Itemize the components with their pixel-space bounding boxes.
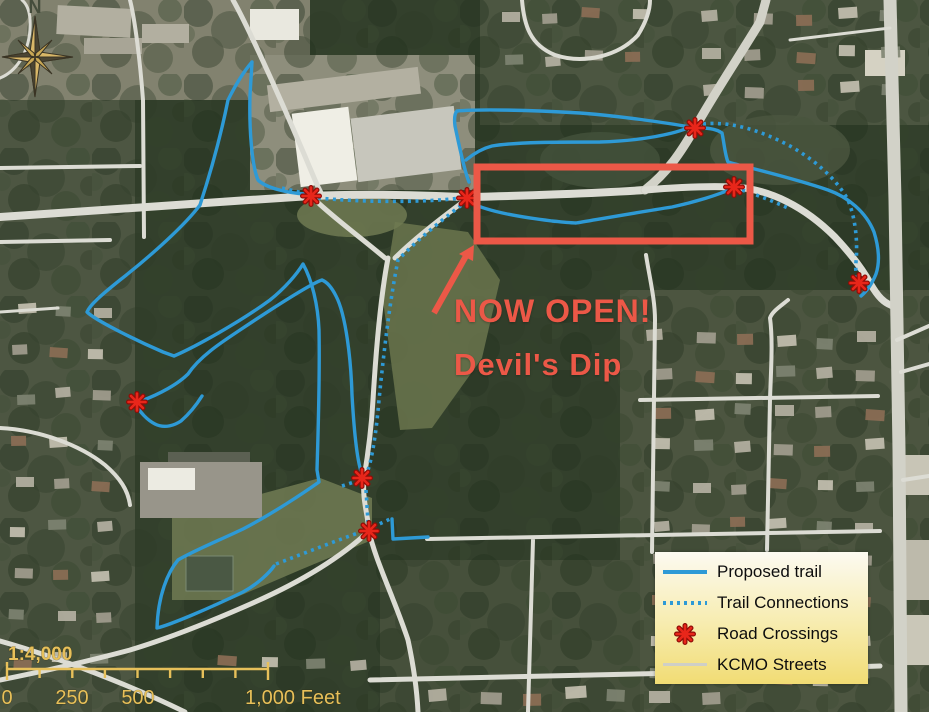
legend-label: KCMO Streets: [717, 655, 827, 675]
scale-tick-500: 500: [121, 687, 154, 709]
legend-row-trail-connections: Trail Connections: [655, 588, 868, 618]
scale-end-label: 1,000 Feet: [245, 687, 341, 709]
legend-row-road-crossings: Road Crossings: [655, 619, 868, 649]
legend-row-kcmo-streets: KCMO Streets: [655, 650, 868, 680]
map-legend: Proposed trail Trail Connections Road Cr…: [655, 552, 868, 684]
compass-north-label: N: [29, 0, 42, 17]
scale-tick-250: 250: [55, 687, 88, 709]
kcmo-streets-swatch-icon: [663, 663, 707, 666]
now-open-label: NOW OPEN!: [454, 293, 651, 330]
legend-label: Proposed trail: [717, 562, 822, 582]
devils-dip-label: Devil's Dip: [454, 347, 622, 383]
road-crossing-swatch-icon: [663, 623, 707, 645]
legend-label: Trail Connections: [717, 593, 849, 613]
trail-map: N 1:4,000 0 250 500 1,000 Feet NOW OPEN!…: [0, 0, 929, 712]
trail-connections-swatch-icon: [663, 601, 707, 605]
legend-label: Road Crossings: [717, 624, 838, 644]
proposed-trail-swatch-icon: [663, 570, 707, 574]
legend-row-proposed-trail: Proposed trail: [655, 557, 868, 587]
scale-tick-0: 0: [1, 687, 12, 709]
scale-ratio: 1:4,000: [8, 644, 72, 665]
